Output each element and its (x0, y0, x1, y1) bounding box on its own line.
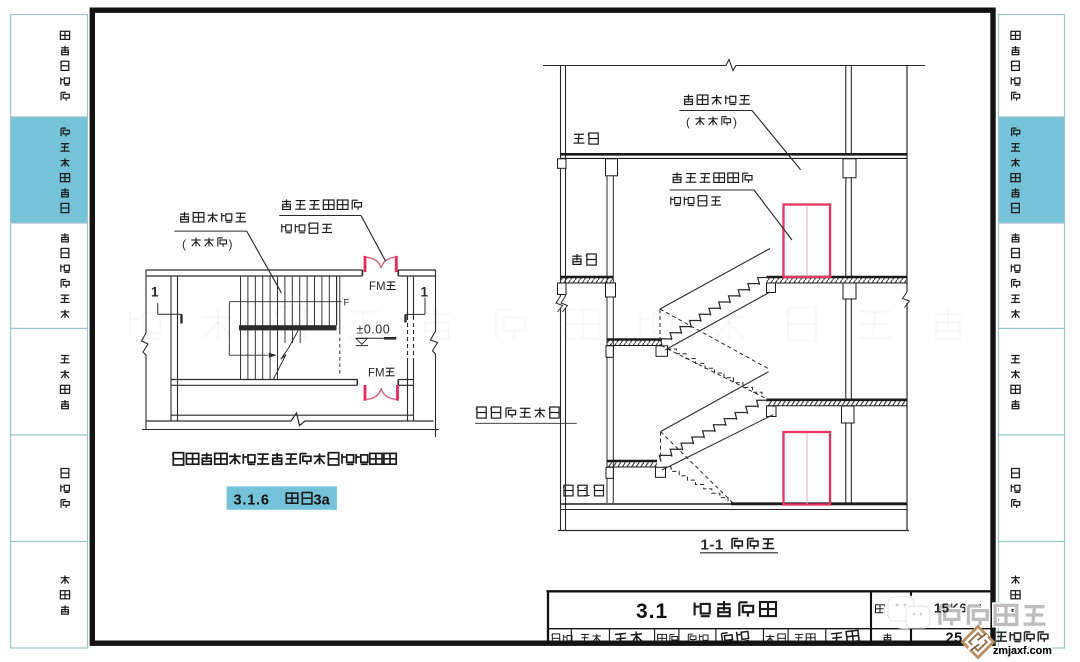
svg-text:1: 1 (421, 285, 429, 300)
svg-text:±0.00: ±0.00 (357, 323, 391, 337)
svg-text:15: 15 (934, 601, 949, 616)
svg-text:3.1: 3.1 (636, 600, 668, 623)
svg-text:1-1: 1-1 (701, 537, 724, 554)
svg-text:25: 25 (946, 631, 963, 647)
svg-text:1: 1 (151, 285, 159, 300)
svg-text:(: ( (686, 115, 690, 129)
svg-text:3a: 3a (314, 492, 331, 508)
svg-text:FM: FM (369, 281, 386, 293)
svg-text:zmjaxf.com: zmjaxf.com (993, 645, 1052, 657)
svg-text:(: ( (182, 237, 186, 251)
svg-text:F: F (344, 298, 350, 309)
svg-text:3.1.6: 3.1.6 (234, 492, 270, 508)
svg-text:): ) (229, 237, 233, 251)
svg-text:1: 1 (583, 484, 590, 499)
svg-text:FM: FM (368, 368, 385, 380)
svg-text:): ) (733, 115, 737, 129)
